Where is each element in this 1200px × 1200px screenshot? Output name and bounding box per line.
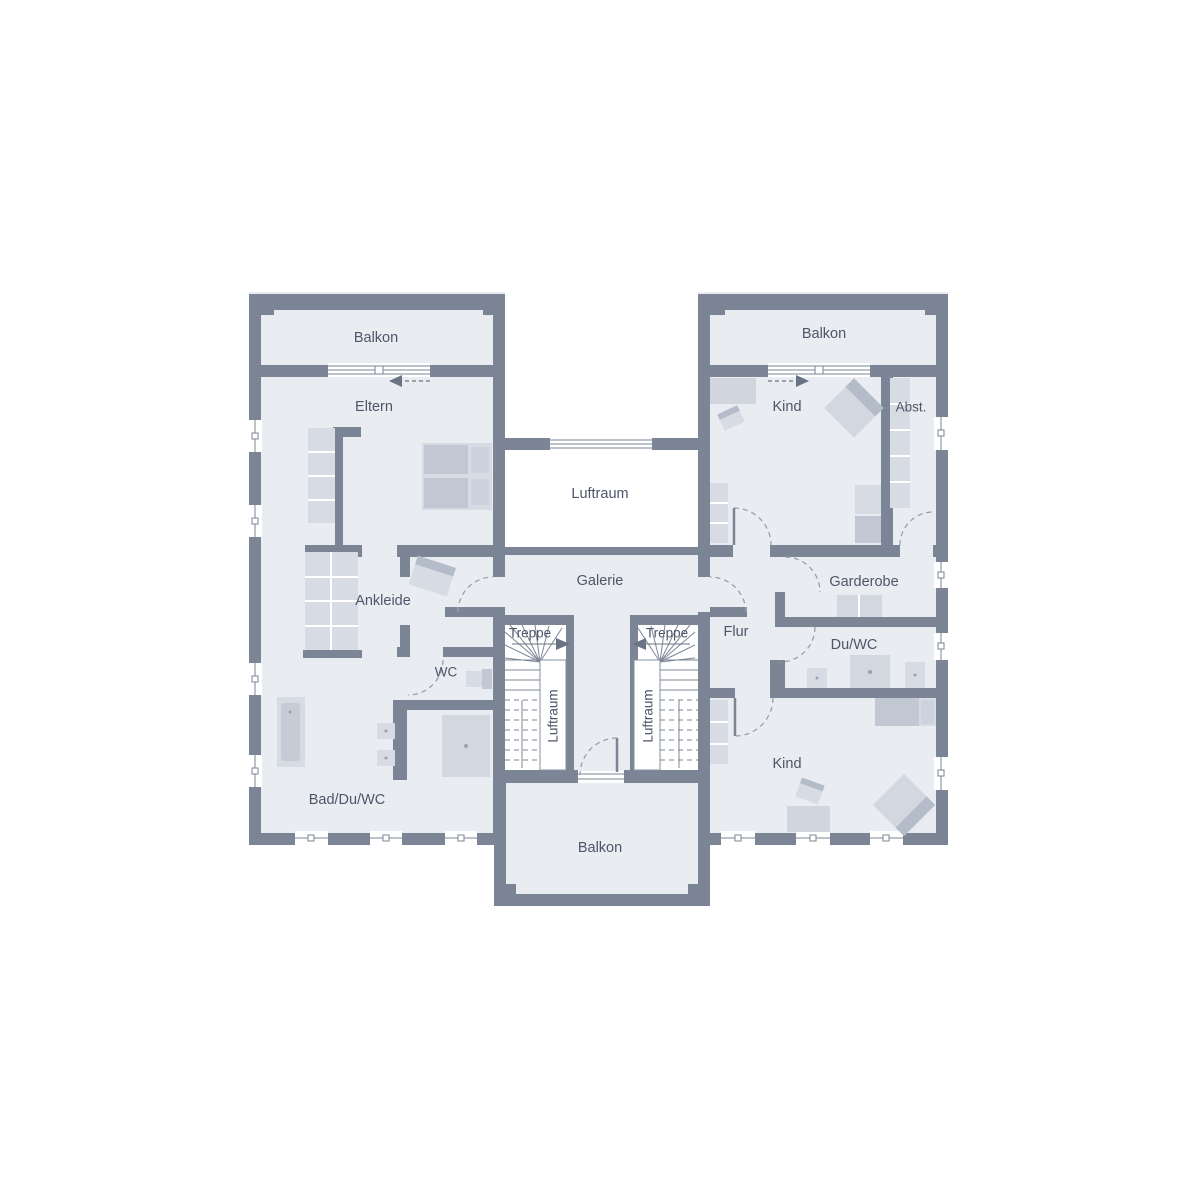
eltern-wardrobe bbox=[308, 428, 335, 523]
sliding-door-balkon-right bbox=[768, 363, 870, 377]
room-label-kind-top: Kind bbox=[772, 399, 801, 415]
duwc-washbasin bbox=[905, 662, 925, 688]
window-left-4 bbox=[248, 755, 262, 787]
window-bottom-left-2 bbox=[370, 831, 402, 845]
window-bottom-right-3 bbox=[870, 831, 903, 845]
window-left-2 bbox=[248, 505, 262, 537]
room-label-eltern: Eltern bbox=[355, 399, 393, 415]
room-label-luftraum-center: Luftraum bbox=[571, 486, 628, 502]
eltern-bed bbox=[422, 443, 492, 510]
wc-toilet bbox=[466, 669, 492, 689]
bad-shower bbox=[442, 715, 490, 777]
door-balkon-bottom bbox=[578, 771, 624, 783]
window-bottom-right-2 bbox=[796, 831, 830, 845]
floor-plan-page: Balkon Balkon Eltern Kind Abst. Luftraum… bbox=[0, 0, 1200, 1200]
window-left-3 bbox=[248, 663, 262, 695]
room-label-kind-bottom: Kind bbox=[772, 756, 801, 772]
duwc-shower bbox=[850, 655, 890, 688]
room-label-luftraum-stair-left: Luftraum bbox=[546, 689, 561, 742]
kind-bottom-wardrobe bbox=[710, 700, 728, 764]
window-right-1 bbox=[934, 417, 948, 450]
kind-top-desk bbox=[710, 378, 756, 404]
ankleide-wardrobe bbox=[305, 552, 358, 650]
room-label-ankleide: Ankleide bbox=[355, 593, 411, 609]
garderobe-wardrobe bbox=[837, 595, 882, 617]
room-label-duwc: Du/WC bbox=[831, 637, 878, 653]
window-right-3 bbox=[934, 633, 948, 660]
bad-bathtub bbox=[277, 697, 305, 767]
window-bottom-left-3 bbox=[445, 831, 477, 845]
room-label-treppe-right: Treppe bbox=[646, 626, 688, 641]
kind-bottom-bed bbox=[875, 698, 936, 726]
room-label-galerie: Galerie bbox=[577, 573, 624, 589]
room-label-bad-du-wc: Bad/Du/WC bbox=[309, 792, 386, 808]
window-luftraum-top bbox=[550, 437, 652, 451]
room-label-balkon-bottom: Balkon bbox=[578, 840, 622, 856]
window-bottom-right-1 bbox=[721, 831, 755, 845]
window-right-2 bbox=[934, 562, 948, 588]
room-label-abst: Abst. bbox=[896, 400, 927, 415]
room-label-balkon-top-left: Balkon bbox=[354, 330, 398, 346]
room-label-wc: WC bbox=[435, 665, 458, 680]
window-left-1 bbox=[248, 420, 262, 452]
room-label-flur: Flur bbox=[724, 624, 749, 640]
room-label-treppe-left: Treppe bbox=[509, 626, 551, 641]
room-label-garderobe: Garderobe bbox=[829, 574, 898, 590]
duwc-toilet bbox=[807, 668, 827, 688]
window-right-4 bbox=[934, 757, 948, 790]
floor-plan: Balkon Balkon Eltern Kind Abst. Luftraum… bbox=[0, 0, 1200, 1200]
sliding-door-balkon-left bbox=[328, 363, 430, 377]
kind-bottom-desk bbox=[787, 806, 830, 832]
abst-shelf bbox=[890, 378, 910, 508]
room-label-luftraum-stair-right: Luftraum bbox=[641, 689, 656, 742]
window-bottom-left-1 bbox=[295, 831, 328, 845]
kind-top-wardrobe bbox=[710, 483, 728, 543]
kind-top-cabinet bbox=[855, 485, 881, 543]
room-label-balkon-top-right: Balkon bbox=[802, 326, 846, 342]
